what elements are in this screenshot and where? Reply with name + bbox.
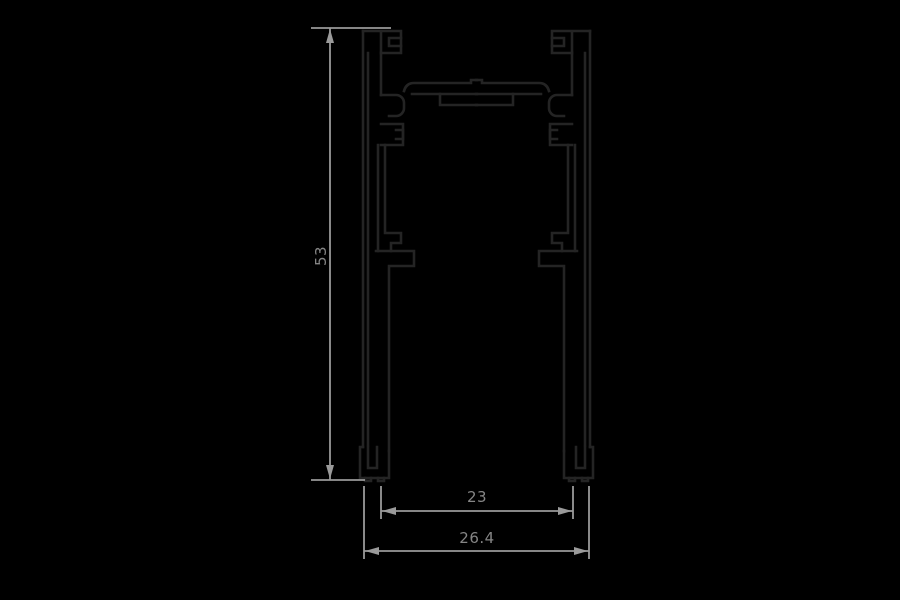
arrowhead-overall-width-left — [365, 547, 379, 555]
arrowhead-overall-width-right — [574, 547, 588, 555]
profile-flange-slot — [389, 38, 401, 46]
inner-width-dimension-label: 23 — [467, 488, 487, 506]
profile-outline — [360, 31, 593, 481]
dimension-labels: 53 23 26.4 — [312, 246, 495, 547]
height-dimension-label: 53 — [312, 246, 330, 266]
drawing-viewport: 53 23 26.4 — [0, 0, 900, 600]
profile-drawing-svg: 53 23 26.4 — [0, 0, 900, 600]
arrowhead-height-bottom — [326, 465, 334, 479]
profile-hook-block — [381, 124, 403, 145]
profile-mid-ledge — [376, 251, 414, 451]
profile-bridge-top — [404, 80, 477, 91]
profile-bridge-channel — [440, 94, 477, 105]
arrowhead-inner-width-left — [382, 507, 396, 515]
profile-mid-notch-step — [385, 145, 401, 251]
arrowhead-inner-width-right — [558, 507, 572, 515]
profile-foot-slot — [368, 447, 377, 468]
profile-hook-upper — [381, 95, 404, 116]
overall-width-dimension-label: 26.4 — [459, 529, 494, 547]
dimension-lines — [311, 28, 589, 559]
arrowhead-height-top — [326, 29, 334, 43]
profile-right-half — [476, 31, 593, 481]
profile-top-flange — [363, 31, 401, 53]
profile-foot — [360, 447, 389, 478]
profile-hook-block-notch — [396, 130, 403, 139]
profile-left-half — [360, 31, 477, 481]
